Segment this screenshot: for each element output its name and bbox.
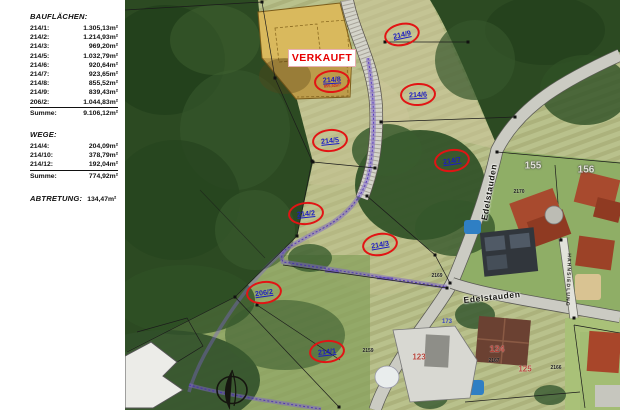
parcel-id: 214/10: xyxy=(30,151,53,160)
parcel-area: 839,43m² xyxy=(89,88,118,97)
parcel-ellipse-label: 214/1 xyxy=(318,346,337,357)
sum-row: Summe:774,92m² xyxy=(30,171,118,181)
verkauft-sign: VERKAUFT xyxy=(288,49,356,67)
table-row: 206/2:1.044,83m² xyxy=(30,98,118,108)
table-row: 214/8:855,52m² xyxy=(30,79,118,88)
parcel-id: 214/4: xyxy=(30,142,49,151)
site-plan-page: BAUFLÄCHEN: 214/1:1.305,13m² 214/2:1.214… xyxy=(0,0,620,410)
house-number: 123 xyxy=(412,353,425,362)
sum-value: 9.106,12m² xyxy=(83,109,118,118)
cadastre-number: 2169 xyxy=(431,273,442,279)
house-number: 156 xyxy=(578,165,595,176)
cadastre-number: 2166 xyxy=(550,365,561,371)
cadastre-number: 2167 xyxy=(488,358,499,364)
aerial-parcel-map: VERKAUFT 214/9 214/8855,52m² 214/6 214/5… xyxy=(125,0,620,410)
parcel-ellipse-label: 214/6 xyxy=(409,90,427,100)
cadastre-number: 2170 xyxy=(513,189,524,195)
parcel-area: 204,09m² xyxy=(89,142,118,151)
parcel-area: 1.032,79m² xyxy=(83,52,118,61)
parcel-area: 855,52m² xyxy=(89,79,118,88)
parcel-area: 1.044,83m² xyxy=(83,98,118,107)
house-number: 125 xyxy=(518,365,531,374)
table-row: 214/12:192,04m² xyxy=(30,160,118,170)
parcel-ellipse-label: 214/3 xyxy=(370,239,389,251)
parcel-id: 214/2: xyxy=(30,33,49,42)
parcel-id: 214/5: xyxy=(30,52,49,61)
parcel-area: 969,20m² xyxy=(89,42,118,51)
wege-title: WEGE: xyxy=(30,130,118,140)
parcel-area: 923,65m² xyxy=(89,70,118,79)
sum-row: Summe:9.106,12m² xyxy=(30,108,118,118)
parcel-area: 1.305,13m² xyxy=(83,24,118,33)
sum-label: Summe: xyxy=(30,172,57,181)
table-row: 214/10:378,79m² xyxy=(30,151,118,160)
table-row: 214/1:1.305,13m² xyxy=(30,24,118,33)
legend-sidebar: BAUFLÄCHEN: 214/1:1.305,13m² 214/2:1.214… xyxy=(0,0,125,410)
parcel-ellipse-label: 206/2 xyxy=(254,287,273,298)
table-row: 214/5:1.032,79m² xyxy=(30,52,118,61)
wege-table: WEGE: 214/4:204,09m² 214/10:378,79m² 214… xyxy=(30,130,118,181)
parcel-area: 920,64m² xyxy=(89,61,118,70)
parcel-ellipse-label: 214/2 xyxy=(297,208,316,219)
parcel-id: 214/3: xyxy=(30,42,49,51)
house-number: 124 xyxy=(489,344,504,354)
parcel-area: 1.214,93m² xyxy=(83,33,118,42)
table-row: 214/7:923,65m² xyxy=(30,70,118,79)
parcel-id: 214/6: xyxy=(30,61,49,70)
parcel-id: 214/12: xyxy=(30,160,53,169)
table-row: 214/4:204,09m² xyxy=(30,142,118,151)
table-row: 214/3:969,20m² xyxy=(30,42,118,51)
parcel-ellipse-label: 214/5 xyxy=(321,135,340,146)
parcel-ellipse-area: 855,52m² xyxy=(324,83,341,88)
house-number: 173 xyxy=(442,319,452,325)
parcel-id: 214/1: xyxy=(30,24,49,33)
sum-label: Summe: xyxy=(30,109,57,118)
parcel-ellipse-label: 214/7 xyxy=(442,155,461,166)
bauflaechen-table: BAUFLÄCHEN: 214/1:1.305,13m² 214/2:1.214… xyxy=(30,12,118,118)
parcel-id: 214/7: xyxy=(30,70,49,79)
abtretung-row: ABTRETUNG: 134,47m² xyxy=(30,194,125,205)
parcel-id: 206/2: xyxy=(30,98,49,107)
sum-value: 774,92m² xyxy=(89,172,118,181)
parcel-id: 214/9: xyxy=(30,88,49,97)
house-number: 155 xyxy=(525,161,542,172)
parcel-area: 378,79m² xyxy=(89,151,118,160)
table-row: 214/2:1.214,93m² xyxy=(30,33,118,42)
abtretung-value: 134,47m² xyxy=(87,195,116,205)
bauflaechen-title: BAUFLÄCHEN: xyxy=(30,12,118,22)
cadastre-number: 2159 xyxy=(362,348,373,354)
parcel-area: 192,04m² xyxy=(89,160,118,169)
table-row: 214/9:839,43m² xyxy=(30,88,118,97)
table-row: 214/6:920,64m² xyxy=(30,61,118,70)
parcel-id: 214/8: xyxy=(30,79,49,88)
abtretung-label: ABTRETUNG: xyxy=(30,194,82,204)
parcel-ellipse-label: 214/9 xyxy=(392,28,411,41)
